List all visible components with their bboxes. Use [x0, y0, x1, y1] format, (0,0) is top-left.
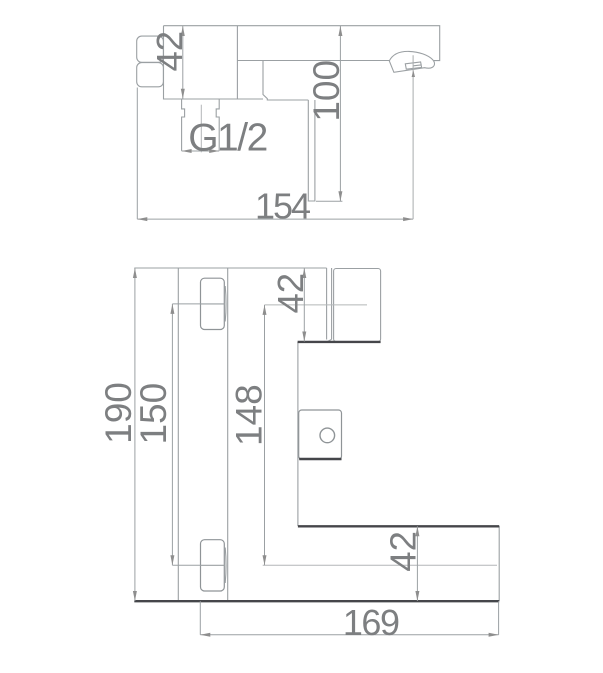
svg-text:169: 169: [343, 602, 399, 643]
svg-text:42: 42: [270, 273, 311, 314]
svg-text:154: 154: [255, 186, 310, 227]
svg-text:150: 150: [133, 383, 174, 445]
svg-text:148: 148: [229, 384, 270, 446]
svg-text:100: 100: [306, 60, 347, 122]
svg-text:42: 42: [383, 531, 424, 572]
svg-text:42: 42: [149, 31, 190, 72]
svg-text:G1/2: G1/2: [188, 116, 267, 159]
